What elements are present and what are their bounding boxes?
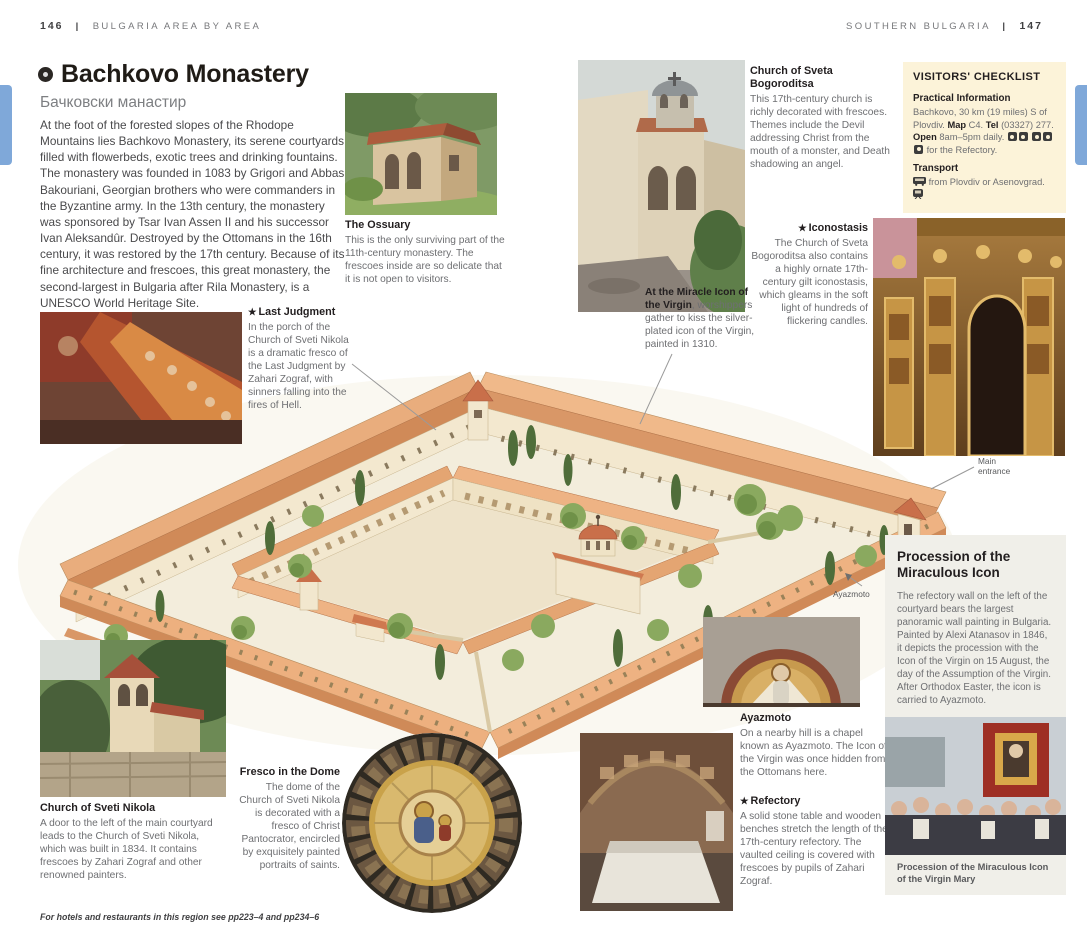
sveti-nikola-photo — [40, 640, 226, 797]
map-value: C4. — [969, 120, 983, 130]
transport-route: from Plovdiv or Asenovgrad. — [929, 177, 1045, 187]
star-icon: ★ — [248, 307, 257, 318]
caption-body: This is the only surviving part of the 1… — [345, 234, 505, 286]
caption-heading: Iconostasis — [809, 222, 868, 234]
dome-fresco-photo — [342, 733, 522, 913]
main-entrance-label: Main entrance — [978, 456, 1026, 477]
ayazmoto-label: Ayazmoto — [833, 589, 870, 599]
page-title: Bachkovo Monastery — [61, 60, 309, 89]
sidebar-title: Procession of the Miraculous Icon — [897, 549, 1054, 581]
caption-body: The Church of Sveta Bogoroditsa also con… — [748, 237, 868, 328]
star-icon: ★ — [798, 223, 807, 234]
guidebook-spread: 146 | BULGARIA AREA BY AREA SOUTHERN BUL… — [0, 0, 1087, 944]
ayazmoto-photo — [703, 617, 860, 707]
last-judgment-photo — [40, 312, 242, 444]
map-label: Map — [947, 120, 966, 130]
visitors-checklist-box: VISITORS' CHECKLIST Practical Informatio… — [903, 62, 1066, 213]
procession-sidebar-box: Procession of the Miraculous Icon The re… — [885, 535, 1066, 895]
miracle-icon-caption: At the Miracle Icon of the Virgin, worsh… — [645, 286, 761, 351]
procession-photo — [885, 717, 1066, 855]
page-number-left: 146 — [40, 20, 64, 32]
ayazmoto-caption: Ayazmoto On a nearby hill is a chapel kn… — [740, 712, 888, 779]
caption-body: A solid stone table and wooden benches s… — [740, 810, 890, 888]
section-title-left: BULGARIA AREA BY AREA — [93, 21, 262, 32]
dome-fresco-caption: Fresco in the Dome The dome of the Churc… — [238, 766, 340, 872]
tel-label: Tel — [986, 120, 999, 130]
article-title-row: Bachkovo Monastery — [38, 60, 309, 89]
tel-value: (03327) 277. — [1001, 120, 1054, 130]
intro-paragraph: At the foot of the forested slopes of th… — [40, 117, 348, 311]
checklist-title: VISITORS' CHECKLIST — [913, 71, 1056, 83]
header-left: 146 | BULGARIA AREA BY AREA — [40, 20, 261, 32]
facility-icon — [914, 145, 923, 154]
iconostasis-caption: ★Iconostasis The Church of Sveta Bogorod… — [748, 222, 868, 328]
transport-text: from Plovdiv or Asenovgrad. — [913, 176, 1056, 201]
bus-icon — [913, 177, 926, 186]
procession-photo-caption: Procession of the Miraculous Icon of the… — [897, 861, 1054, 885]
transport-heading: Transport — [913, 163, 1056, 174]
header-right: SOUTHERN BULGARIA | 147 — [846, 20, 1043, 32]
caption-body: The dome of the Church of Sveti Nikola i… — [238, 781, 340, 872]
map-marker-icon — [38, 67, 53, 82]
facility-icon — [1043, 132, 1052, 141]
footer-note: For hotels and restaurants in this regio… — [40, 912, 319, 922]
facility-icon — [1008, 132, 1017, 141]
header-divider: | — [76, 21, 81, 32]
page-edge-tab-right — [1075, 85, 1087, 165]
open-value: 8am–5pm daily. — [939, 132, 1004, 142]
last-judgment-caption: ★Last Judgment In the porch of the Churc… — [248, 306, 358, 412]
sveta-bogoroditsa-photo — [578, 60, 745, 312]
facility-icon — [1032, 132, 1041, 141]
sveti-nikola-caption: Church of Sveti Nikola A door to the lef… — [40, 802, 220, 882]
caption-heading: Church of Sveti Nikola — [40, 802, 220, 815]
refectory-note: for the Refectory. — [927, 145, 998, 155]
page-number-right: 147 — [1019, 20, 1043, 32]
page-subtitle-cyrillic: Бачковски манастир — [40, 94, 186, 112]
refectory-photo — [580, 733, 733, 911]
rail-icon — [913, 189, 923, 199]
sveta-bogoroditsa-caption: Church of Sveta Bogoroditsa This 17th-ce… — [750, 65, 893, 171]
page-edge-tab-left — [0, 85, 12, 165]
facility-icon — [1019, 132, 1028, 141]
header-divider: | — [1002, 21, 1007, 32]
caption-heading: The Ossuary — [345, 219, 505, 232]
iconostasis-photo — [873, 218, 1065, 456]
practical-info-text: Bachkovo, 30 km (19 miles) S of Plovdiv.… — [913, 106, 1056, 156]
refectory-caption: ★Refectory A solid stone table and woode… — [740, 795, 890, 888]
practical-info-heading: Practical Information — [913, 93, 1056, 104]
caption-body: On a nearby hill is a chapel known as Ay… — [740, 727, 888, 779]
star-icon: ★ — [740, 796, 749, 807]
ossuary-photo — [345, 93, 497, 215]
caption-body: This 17th-century church is richly decor… — [750, 93, 893, 171]
section-title-right: SOUTHERN BULGARIA — [846, 21, 990, 32]
caption-heading: Last Judgment — [259, 306, 336, 318]
caption-body: A door to the left of the main courtyard… — [40, 817, 220, 882]
caption-body: In the porch of the Church of Sveti Niko… — [248, 321, 358, 412]
caption-heading: Fresco in the Dome — [238, 766, 340, 779]
ossuary-caption: The Ossuary This is the only surviving p… — [345, 219, 505, 286]
caption-heading: Refectory — [751, 795, 801, 807]
open-label: Open — [913, 132, 937, 142]
caption-heading: Church of Sveta Bogoroditsa — [750, 65, 893, 91]
sidebar-body: The refectory wall on the left of the co… — [897, 590, 1054, 707]
caption-heading: Ayazmoto — [740, 712, 888, 725]
